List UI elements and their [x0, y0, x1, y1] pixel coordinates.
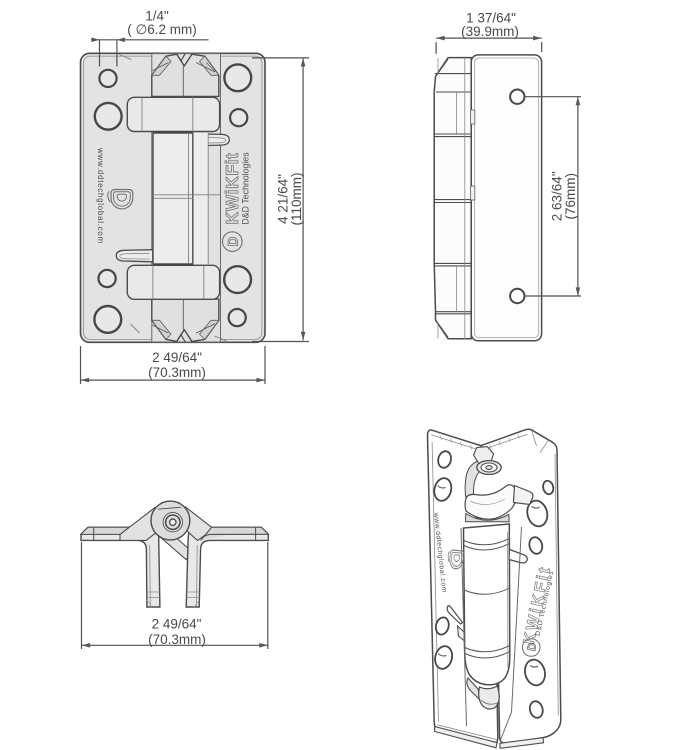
- svg-text:2 49/64": 2 49/64": [152, 350, 202, 365]
- svg-text:(70.3mm): (70.3mm): [148, 365, 206, 380]
- svg-text:(76mm): (76mm): [563, 173, 578, 220]
- svg-text:KWiKFit: KWiKFit: [222, 152, 242, 224]
- svg-text:(70.3mm): (70.3mm): [148, 632, 206, 647]
- svg-text:www.ddtechglobal.com: www.ddtechglobal.com: [96, 147, 105, 244]
- svg-text:(39.9mm): (39.9mm): [461, 24, 519, 39]
- svg-text:D&D Technologies: D&D Technologies: [241, 152, 251, 225]
- svg-text:2 49/64": 2 49/64": [152, 617, 202, 632]
- svg-text:(110mm): (110mm): [289, 172, 304, 225]
- svg-text:D: D: [226, 236, 241, 246]
- svg-text:( ∅6.2 mm): ( ∅6.2 mm): [127, 22, 197, 37]
